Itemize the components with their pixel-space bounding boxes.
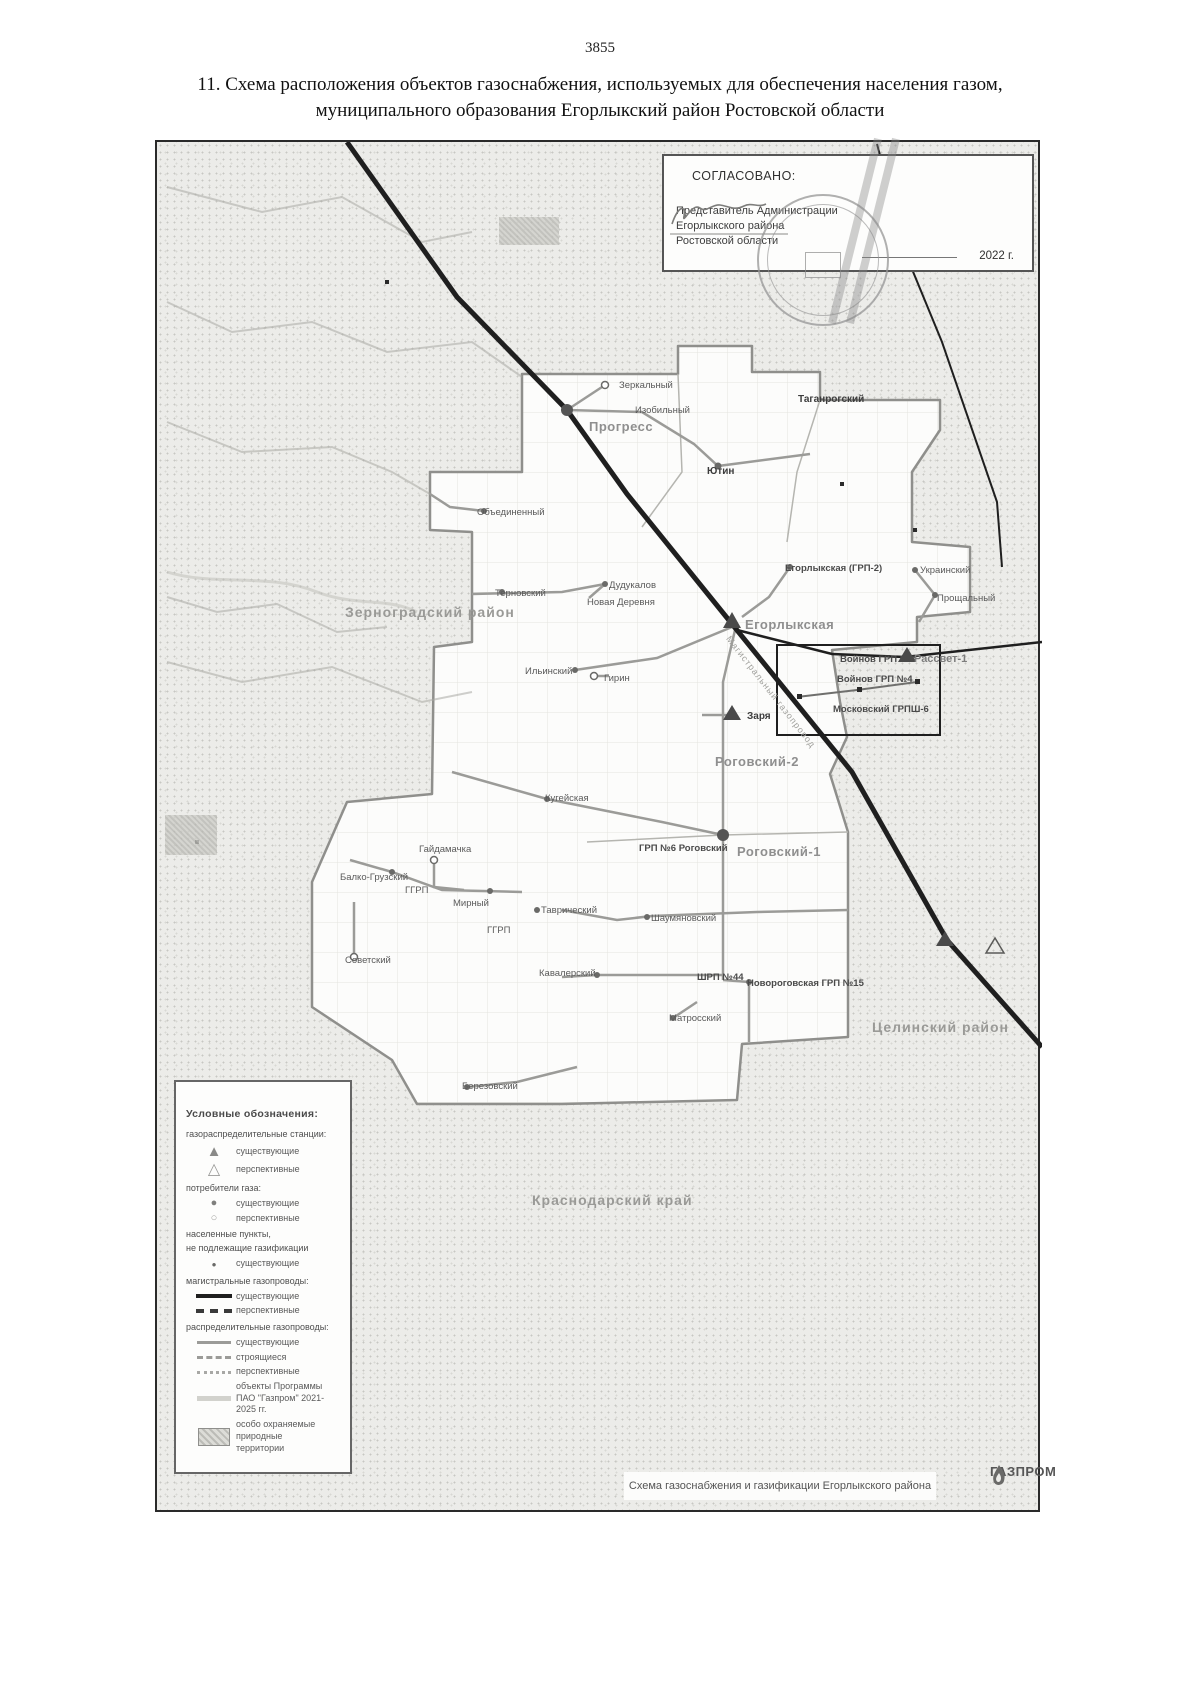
map-canvas: СОГЛАСОВАНО: Представитель Администрации… [155, 140, 1040, 1512]
sw-prog-icon [197, 1396, 231, 1401]
approval-year: 2022 г. [979, 250, 1014, 262]
date-line [862, 257, 957, 258]
map-label: Кугейская [545, 794, 589, 804]
map-caption: Схема газоснабжения и газификации Егорлы… [629, 1480, 931, 1492]
legend-item-text: объекты Программы ПАО "Газпром" 2021-202… [236, 1381, 342, 1416]
legend-item-text: существующие [236, 1198, 299, 1210]
legend-item: перспективные [192, 1366, 342, 1378]
legend-swatch-sw-rg-s [192, 1356, 236, 1359]
map-label: Егорлыкская (ГРП-2) [785, 564, 882, 574]
legend-item: △перспективные [192, 1162, 342, 1178]
legend-title: Условные обозначения: [186, 1108, 342, 1120]
legend-item: ●существующие [192, 1198, 342, 1210]
legend-section: населенные пункты, не подлежащие газифик… [186, 1228, 342, 1270]
legend-swatch-sw-mg-p [192, 1309, 236, 1313]
legend-item-text: перспективные [236, 1164, 300, 1176]
legend-swatch-tri-o: △ [192, 1162, 236, 1178]
page-number: 3855 [0, 40, 1200, 57]
outside-network [167, 187, 522, 702]
page-title-line2: муниципального образования Егорлыкский р… [316, 100, 885, 121]
map-label: Шаумяновский [651, 914, 716, 924]
map-label: Мирный [453, 899, 489, 909]
map-label: Новая Деревня [587, 598, 655, 608]
map-label: Гайдамачка [419, 845, 471, 855]
legend-item-text: существующие [236, 1337, 299, 1349]
legend-item: существующие [192, 1337, 342, 1349]
map-label: Зерноградский район [345, 605, 515, 619]
legend-swatch-sw-rg-p [192, 1371, 236, 1374]
legend-section-label: населенные пункты, не подлежащие газифик… [186, 1228, 342, 1254]
sw-mg-e-icon [196, 1294, 232, 1298]
legend-swatch-sw-mg-e [192, 1294, 236, 1298]
map-label: Дудукалов [609, 581, 656, 591]
sw-mg-p-icon [196, 1309, 232, 1313]
approval-box: СОГЛАСОВАНО: Представитель Администрации… [662, 154, 1034, 272]
gazprom-logo: ГАЗПРОМ [990, 1464, 1056, 1479]
tri-f-icon: ▲ [207, 1144, 222, 1159]
signature [664, 196, 794, 241]
map-caption-box: Схема газоснабжения и газификации Егорлы… [624, 1472, 936, 1500]
map-label: Войнов ГРП №4 [837, 675, 913, 685]
map-label: Матросский [669, 1014, 721, 1024]
legend-swatch-sw-rg-e [192, 1341, 236, 1344]
legend-item: объекты Программы ПАО "Газпром" 2021-202… [192, 1381, 342, 1416]
map-label: Ильинский [525, 667, 572, 677]
legend-item: перспективные [192, 1305, 342, 1317]
legend-section-label: потребители газа: [186, 1182, 342, 1195]
legend-item-text: строящиеся [236, 1352, 286, 1364]
map-label: ГРП №6 Роговский [639, 844, 728, 854]
cir-o-icon: ○ [211, 1213, 218, 1224]
legend-item-text: существующие [236, 1291, 299, 1303]
tri-o-icon: △ [208, 1162, 220, 1178]
approval-heading: СОГЛАСОВАНО: [692, 169, 796, 183]
map-label: Заря [747, 712, 771, 722]
map-label: Роговский-2 [715, 755, 799, 768]
legend-item: строящиеся [192, 1352, 342, 1364]
map-label: Роговский-1 [737, 845, 821, 858]
legend-swatch-tri-f: ▲ [192, 1144, 236, 1159]
legend-item-text: особо охраняемые природные территории [236, 1419, 342, 1454]
map-label: Изобильный [635, 406, 690, 416]
legend-item: ▲существующие [192, 1144, 342, 1159]
map-label: Егорлыкская [745, 618, 834, 631]
map-label: Кавалерский [539, 969, 596, 979]
cir-f-icon: ● [211, 1198, 218, 1209]
map-label: Советский [345, 956, 391, 966]
map-label: Таганрогский [798, 395, 864, 405]
flame-icon [990, 1464, 1008, 1490]
map-label: Прогресс [589, 420, 653, 433]
legend-item: существующие [192, 1291, 342, 1303]
terrain-patch [165, 815, 217, 855]
map-label: Войнов ГРП №3 [840, 655, 916, 665]
map-label: Ютин [707, 467, 734, 477]
sw-oopt-icon [198, 1428, 230, 1446]
map-label: Московский ГРПШ-6 [833, 705, 929, 715]
legend-section: потребители газа:●существующие○перспекти… [186, 1182, 342, 1224]
legend-item-text: существующие [236, 1258, 299, 1270]
terrain-patch [499, 217, 559, 245]
legend-section-label: газораспределительные станции: [186, 1128, 342, 1141]
map-label: Целинский район [872, 1020, 1009, 1034]
legend-swatch-cir-o: ○ [192, 1213, 236, 1224]
legend-box: Условные обозначения: газораспределитель… [174, 1080, 352, 1474]
map-label: ГГРП [487, 926, 510, 936]
legend-section: магистральные газопроводы:существующиепе… [186, 1275, 342, 1317]
legend-item: особо охраняемые природные территории [192, 1419, 342, 1454]
map-label: Терновский [495, 589, 546, 599]
legend-section: газораспределительные станции:▲существую… [186, 1128, 342, 1178]
legend-item-text: перспективные [236, 1366, 300, 1378]
map-label: Украинский [920, 566, 970, 576]
map-label: Краснодарский край [532, 1193, 693, 1207]
page-title: 11. Схема расположения объектов газоснаб… [60, 72, 1140, 123]
page-title-line1: 11. Схема расположения объектов газоснаб… [197, 74, 1002, 95]
map-label: Березовский [462, 1082, 518, 1092]
legend-item: •существующие [192, 1258, 342, 1271]
map-label: Объединенный [477, 508, 545, 518]
map-label: ШРП №44 [697, 973, 744, 983]
map-label: Зеркальный [619, 381, 673, 391]
map-label: Балко-Грузский [340, 873, 408, 883]
legend-item: ○перспективные [192, 1213, 342, 1225]
dot-icon: • [212, 1258, 217, 1271]
legend-swatch-sw-prog [192, 1396, 236, 1401]
legend-section: распределительные газопроводы:существующ… [186, 1321, 342, 1454]
map-label: Рассвет-1 [914, 654, 967, 665]
legend-swatch-dot: • [192, 1258, 236, 1271]
legend-item-text: перспективные [236, 1213, 300, 1225]
legend-sections: газораспределительные станции:▲существую… [186, 1128, 342, 1454]
sw-rg-s-icon [197, 1356, 231, 1359]
legend-swatch-sw-oopt [192, 1428, 236, 1446]
sw-rg-e-icon [197, 1341, 231, 1344]
district-boundary [312, 346, 970, 1104]
legend-swatch-cir-f: ● [192, 1198, 236, 1209]
legend-item-text: перспективные [236, 1305, 300, 1317]
legend-section-label: магистральные газопроводы: [186, 1275, 342, 1288]
map-label: Прощальный [937, 594, 995, 604]
map-label: Таврический [541, 906, 597, 916]
legend-section-label: распределительные газопроводы: [186, 1321, 342, 1334]
map-label: Новороговская ГРП №15 [747, 979, 864, 989]
map-label: ГГРП [405, 886, 428, 896]
sw-rg-p-icon [197, 1371, 231, 1374]
legend-item-text: существующие [236, 1146, 299, 1158]
map-label: Гирин [604, 674, 630, 684]
